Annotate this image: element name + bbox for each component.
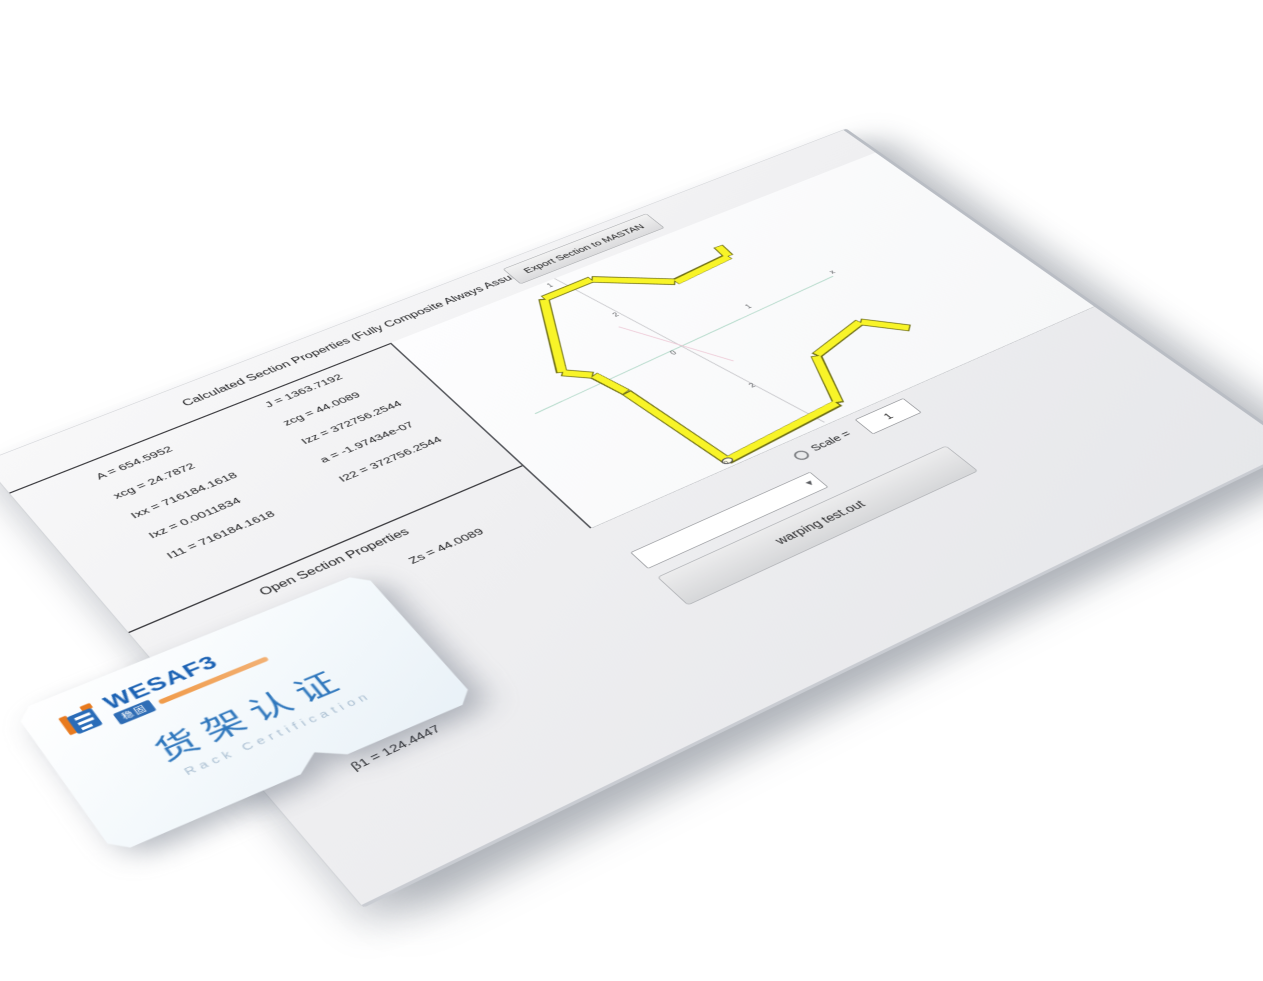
chevron-down-icon: ▼ xyxy=(801,478,818,489)
zs-value: Zs = 44.0089 xyxy=(406,526,487,566)
properties-column-1: A = 654.5952 xcg = 24.7872 Ixx = 716184.… xyxy=(94,433,278,561)
x-axis-label: x xyxy=(827,269,837,275)
axis-tick-label: 2 xyxy=(747,382,758,389)
scale-label: Scale = xyxy=(808,429,855,453)
scene: Calculated Section Properties (Fully Com… xyxy=(0,0,1263,965)
properties-column-2: J = 1363.7192 zcg = 44.0089 Izz = 372756… xyxy=(262,363,444,484)
scale-icon xyxy=(791,449,812,462)
axis-origin-label: 0 xyxy=(668,349,678,356)
principal-axis xyxy=(619,307,734,382)
axis-tick-label: 2 xyxy=(611,311,621,318)
wesafe-logo-icon xyxy=(54,701,109,740)
x-axis xyxy=(524,276,845,414)
axis-tick-label: 1 xyxy=(743,303,753,310)
axis-tick-label: 1 xyxy=(545,282,555,288)
